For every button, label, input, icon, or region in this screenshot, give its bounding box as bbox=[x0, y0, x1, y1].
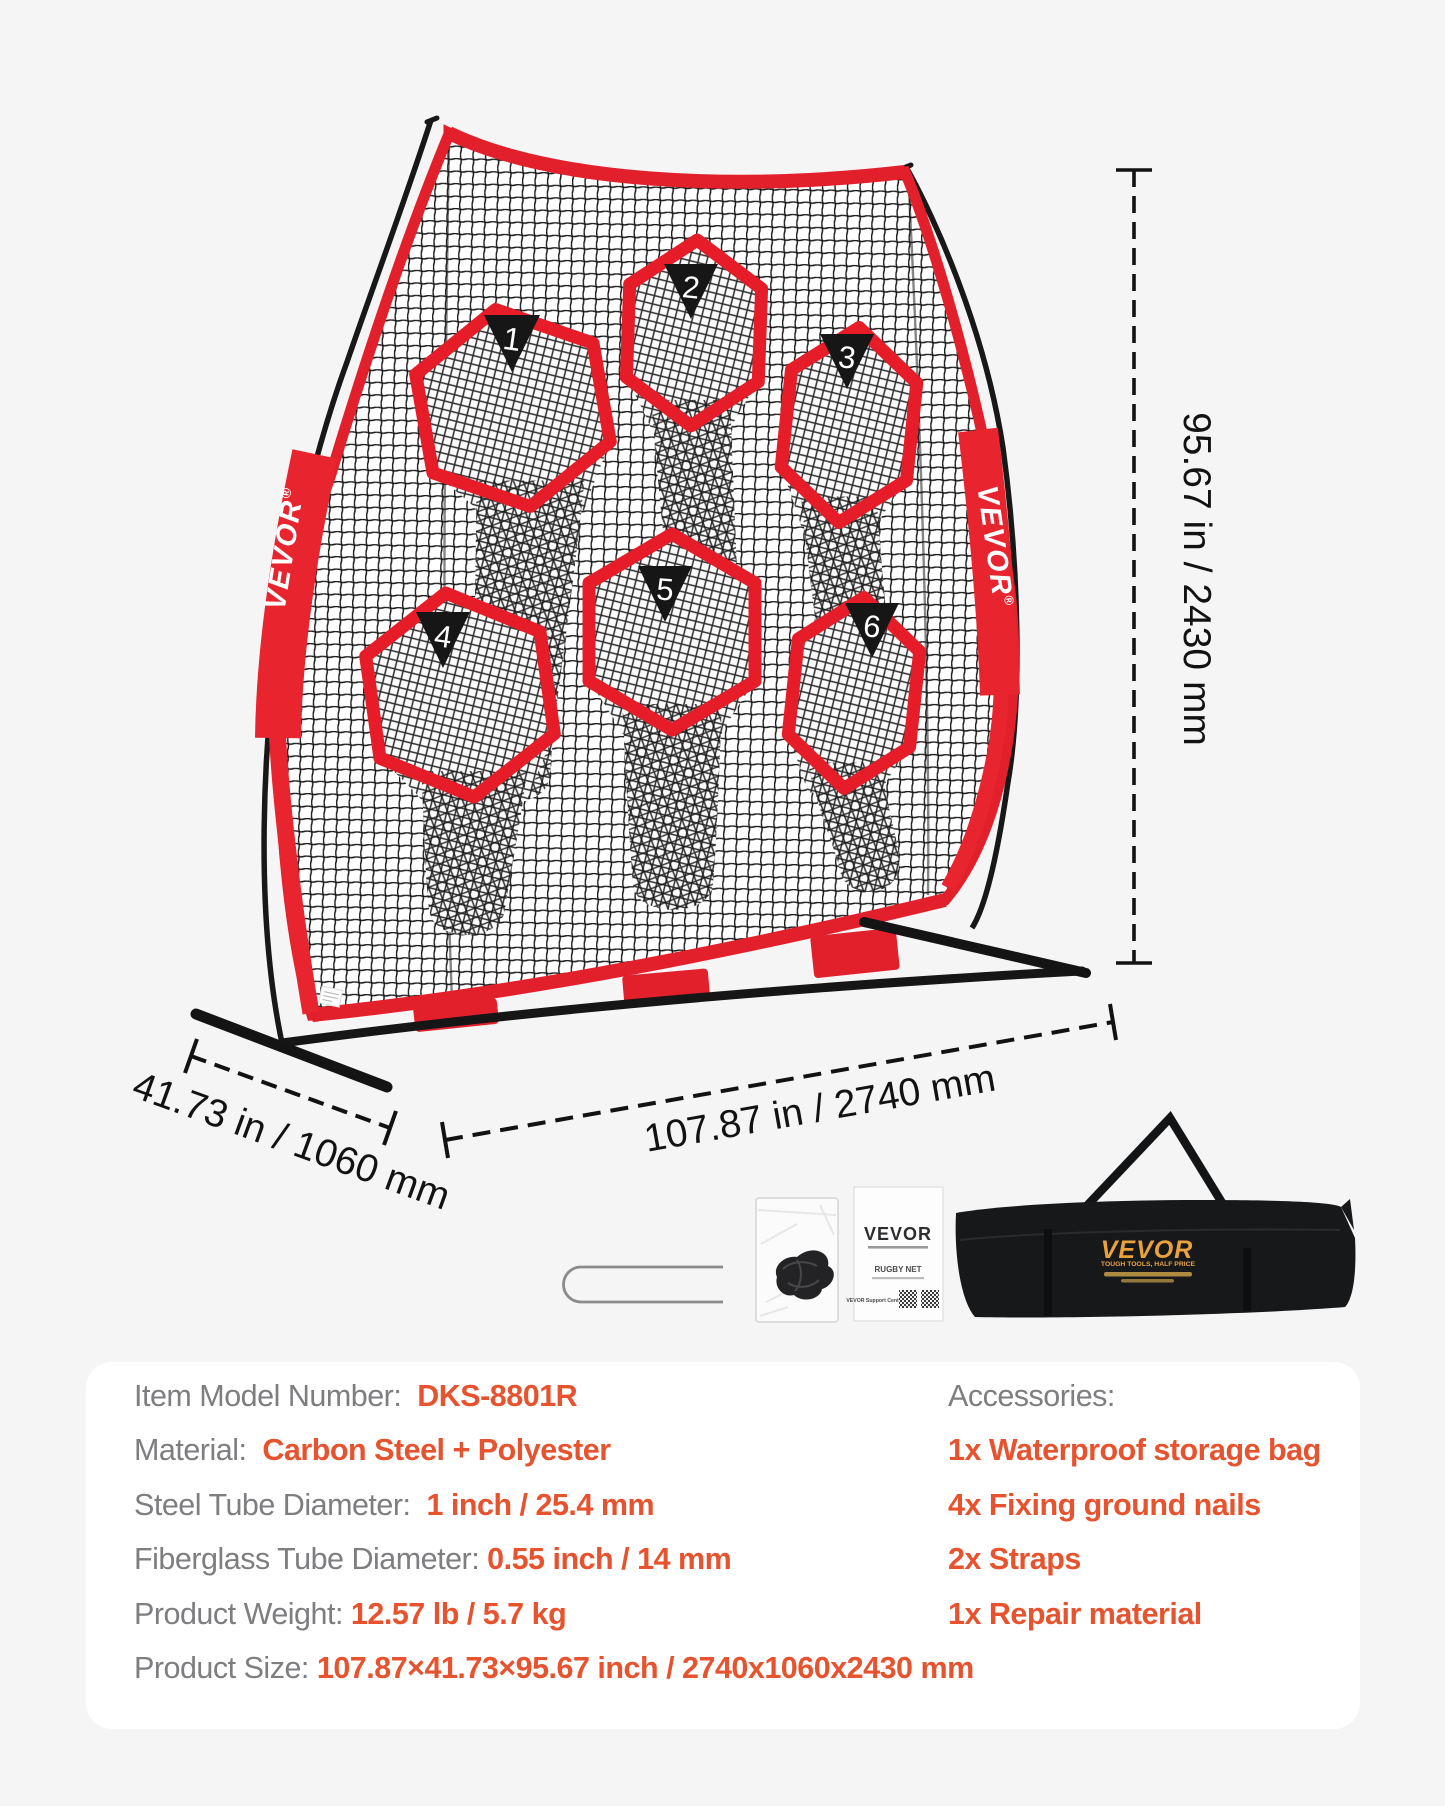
svg-text:41.73 in / 1060 mm: 41.73 in / 1060 mm bbox=[127, 1064, 455, 1219]
svg-text:RUGBY NET: RUGBY NET bbox=[875, 1265, 922, 1274]
svg-text:3: 3 bbox=[837, 339, 858, 376]
svg-text:95.67 in / 2430 mm: 95.67 in / 2430 mm bbox=[1175, 412, 1218, 746]
svg-text:6: 6 bbox=[862, 608, 883, 645]
svg-text:2: 2 bbox=[681, 269, 702, 306]
svg-text:VEVOR: VEVOR bbox=[864, 1224, 932, 1244]
svg-text:VEVOR: VEVOR bbox=[1101, 1236, 1194, 1264]
svg-text:VEVOR Support Center: VEVOR Support Center bbox=[846, 1298, 903, 1304]
svg-text:TOUGH TOOLS, HALF PRICE: TOUGH TOOLS, HALF PRICE bbox=[1101, 1261, 1196, 1268]
svg-text:5: 5 bbox=[655, 571, 675, 607]
